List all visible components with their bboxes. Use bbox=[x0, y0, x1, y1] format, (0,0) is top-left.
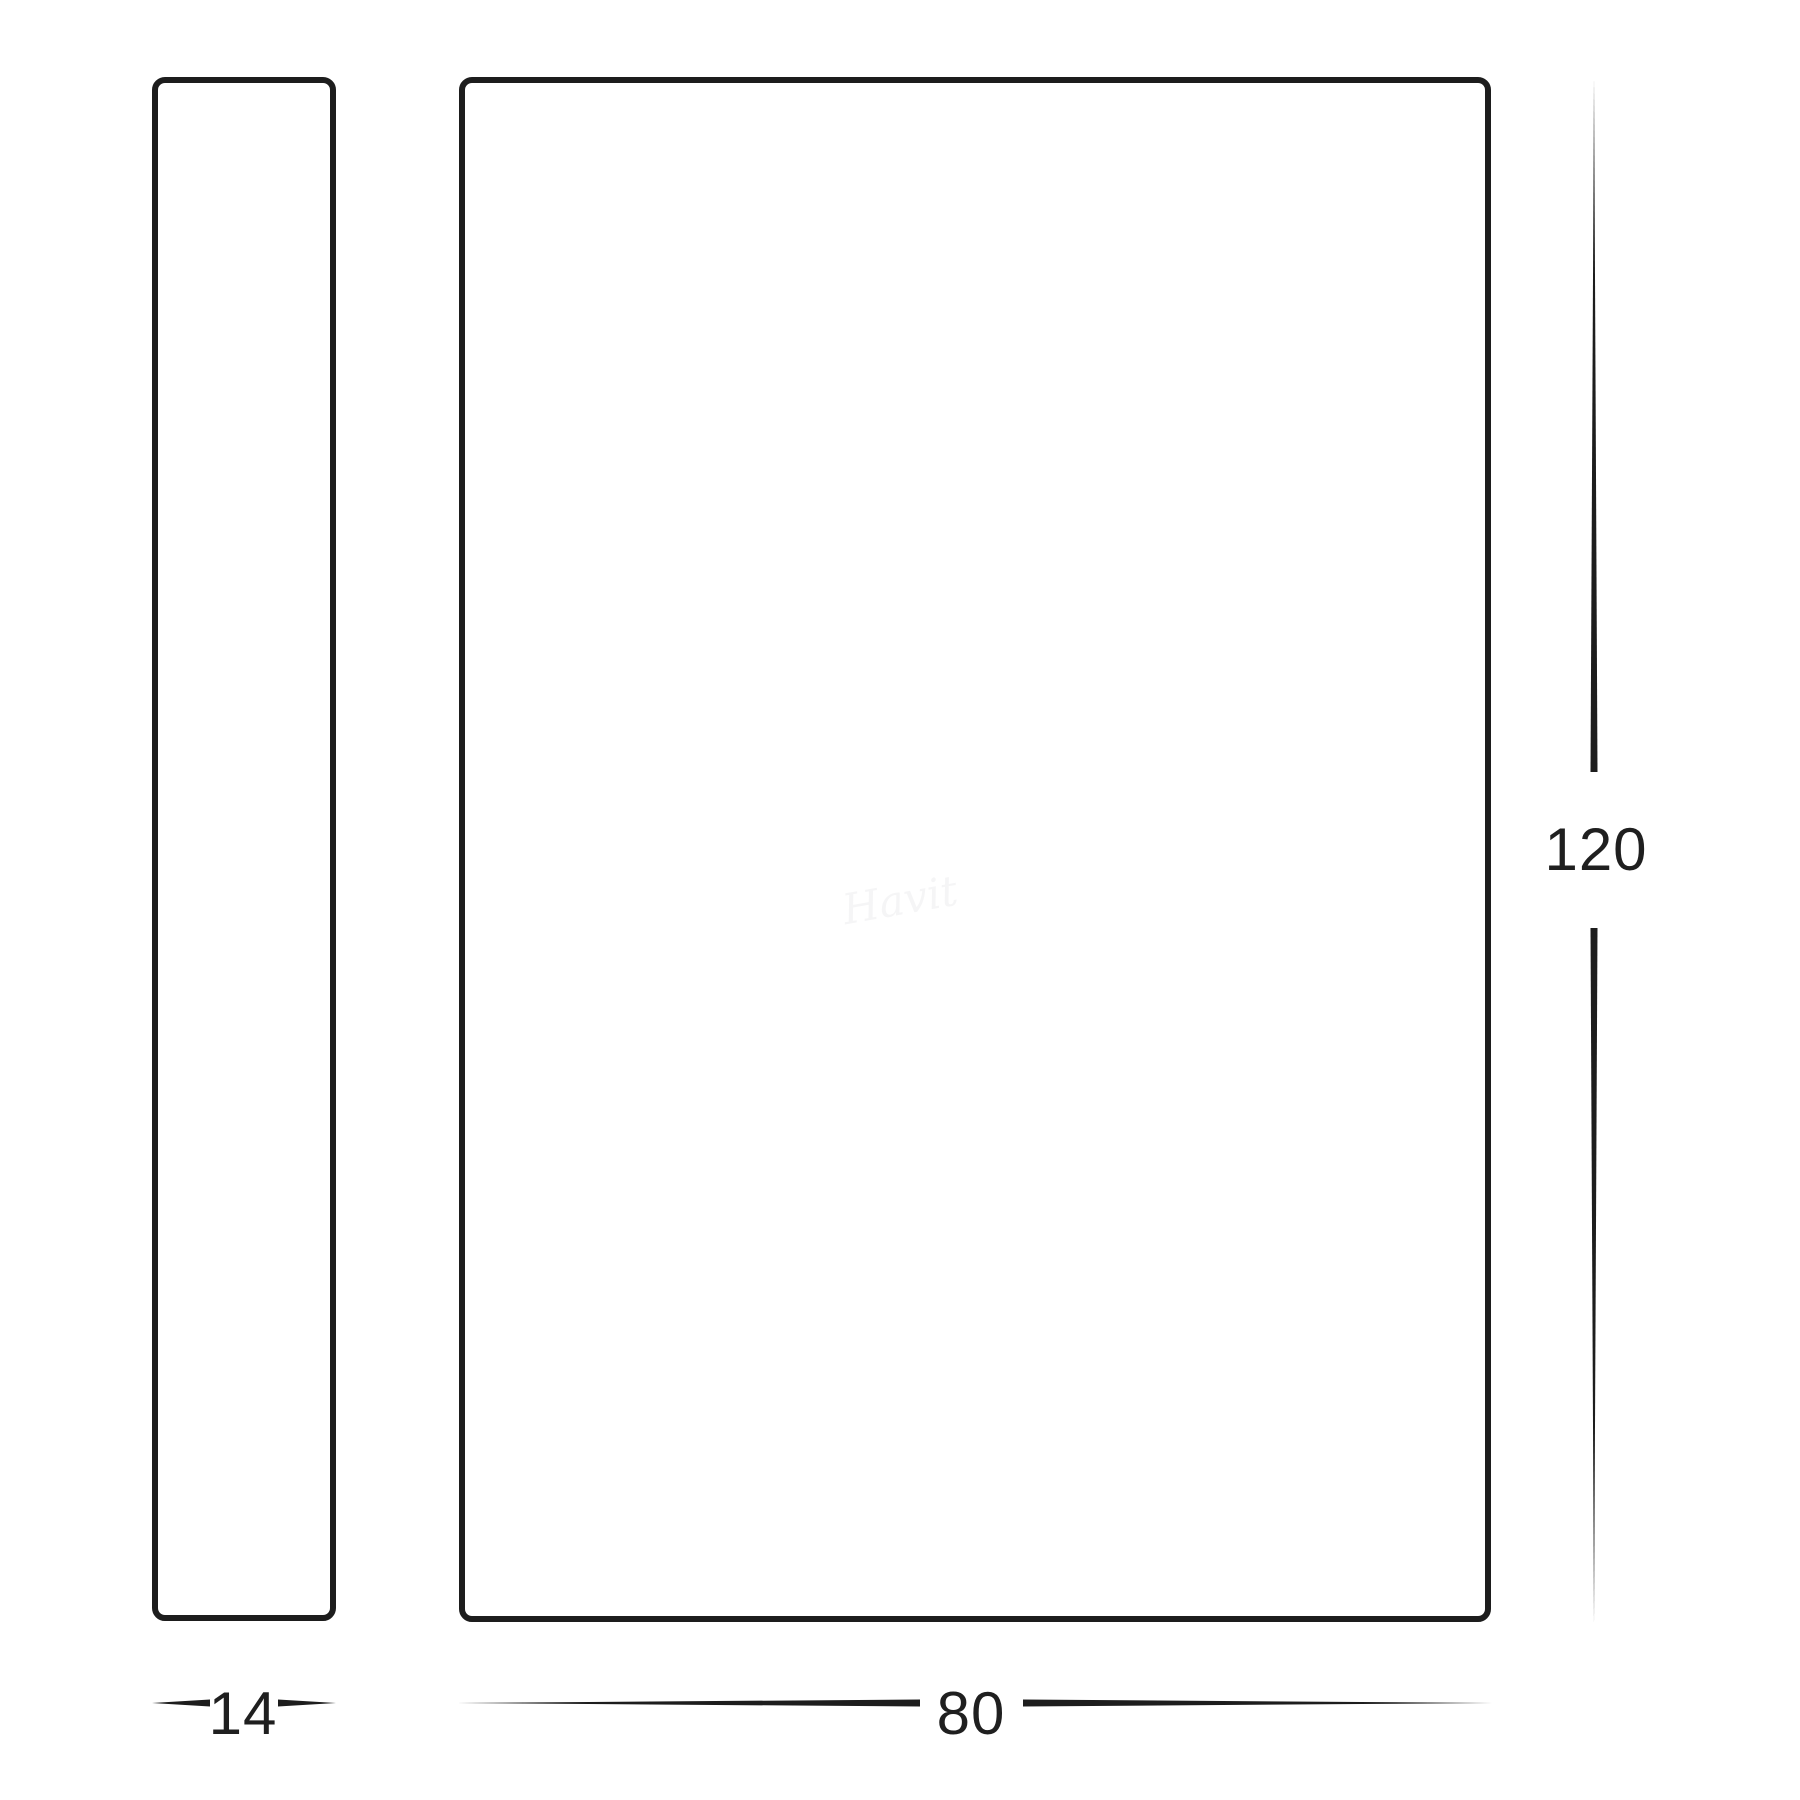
height-dimension-arrow-bottom bbox=[1591, 928, 1598, 1624]
side-view-outline bbox=[152, 77, 336, 1621]
width-dimension-label: 80 bbox=[937, 1684, 1006, 1744]
depth-dimension-arrow-right bbox=[278, 1700, 336, 1707]
dimension-diagram: Havit 14 80 120 bbox=[0, 0, 1800, 1800]
depth-dimension-arrow-left bbox=[152, 1700, 210, 1707]
depth-dimension-label: 14 bbox=[209, 1684, 278, 1744]
width-dimension-arrow-right bbox=[1023, 1700, 1492, 1707]
height-dimension-arrow-top bbox=[1591, 78, 1598, 772]
width-dimension-arrow-left bbox=[457, 1700, 920, 1707]
front-view-outline bbox=[459, 77, 1491, 1622]
height-dimension-label: 120 bbox=[1544, 820, 1647, 880]
